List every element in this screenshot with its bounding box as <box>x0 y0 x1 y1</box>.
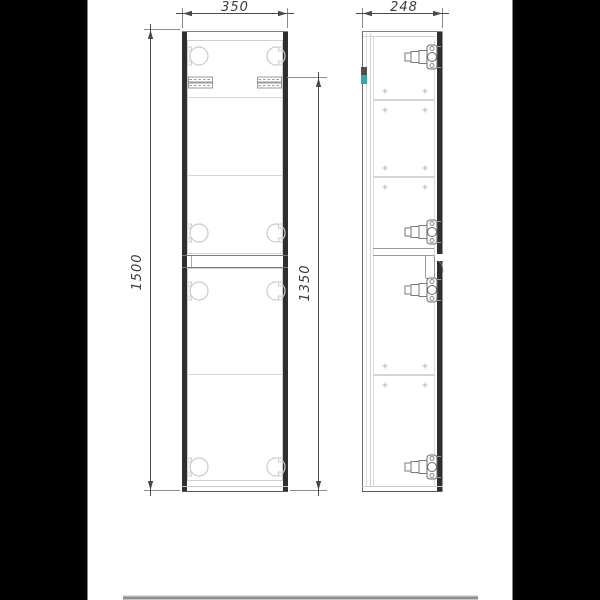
dimension-label-front-width: 350 <box>221 0 249 15</box>
divider-bracket <box>426 256 435 279</box>
technical-drawing-canvas: 350 248 1500 1350 <box>0 0 600 600</box>
front-left-side-panel <box>182 31 187 492</box>
dimension-label-side-depth: 248 <box>390 0 418 15</box>
handle-accent-part <box>361 75 367 84</box>
dimension-label-total-height: 1500 <box>130 253 145 290</box>
footer-divider-bar <box>123 596 478 600</box>
handle-top-part <box>361 67 367 75</box>
screenshot-stage: 350 248 1500 1350 <box>0 0 600 600</box>
side-back-panel-joint-gap <box>437 254 444 261</box>
dimension-label-partial-height: 1350 <box>298 264 313 301</box>
side-door-handle <box>361 67 367 84</box>
front-right-side-panel <box>283 31 288 492</box>
